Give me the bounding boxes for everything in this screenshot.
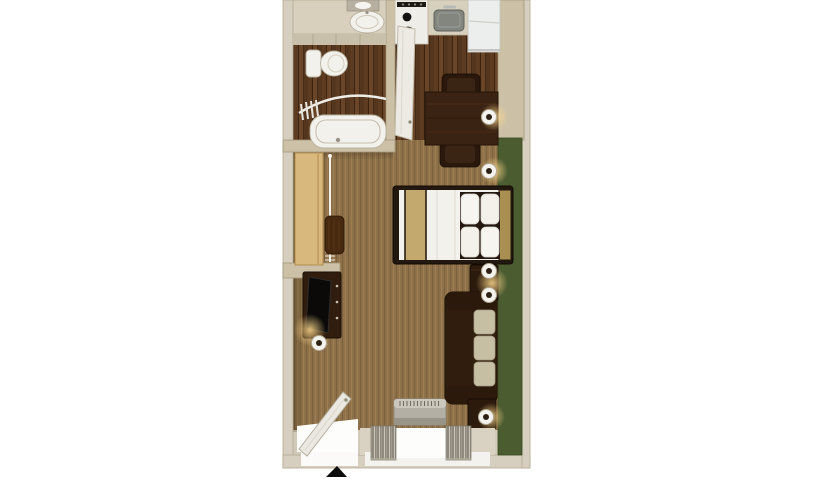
bathtub xyxy=(310,115,386,148)
drawer-knob xyxy=(336,301,339,304)
lamp-center xyxy=(316,340,322,346)
headboard xyxy=(499,190,511,260)
ac-unit xyxy=(394,399,446,425)
lamp-center xyxy=(486,168,492,174)
vanity-sink xyxy=(350,11,384,33)
lamp-center xyxy=(486,114,492,120)
sofa-cushion xyxy=(474,336,495,360)
refrigerator xyxy=(468,0,500,52)
window-light xyxy=(396,428,446,458)
closet-shelf xyxy=(295,153,323,265)
lamp-center xyxy=(483,414,489,420)
floor-plan-image xyxy=(0,0,815,480)
bed-runner xyxy=(405,190,426,260)
kitchen-sink xyxy=(428,0,470,35)
vanity-front xyxy=(293,34,386,45)
door-knob xyxy=(408,120,411,123)
sofa-cushion xyxy=(474,362,495,386)
lamp-center xyxy=(486,292,492,298)
sofa-cushion xyxy=(474,310,495,334)
bathroom-kitchen-divider-wall xyxy=(386,0,395,152)
bathroom-door xyxy=(395,26,415,140)
chair-seat xyxy=(445,145,475,163)
drawer-knob xyxy=(336,285,339,288)
drape-right xyxy=(446,426,471,460)
floor-plan-canvas xyxy=(0,0,815,480)
toilet xyxy=(306,50,348,77)
sofa-seat xyxy=(447,310,473,386)
mirror-reflection xyxy=(355,2,371,9)
tub-drain xyxy=(336,138,340,142)
sofa xyxy=(445,292,497,404)
door-knob xyxy=(344,398,348,402)
drape-left xyxy=(371,426,396,460)
bed xyxy=(393,186,513,264)
doorway-opening xyxy=(301,452,358,466)
sink-faucet xyxy=(443,6,456,9)
drawer-knob xyxy=(336,317,339,320)
lamp-center xyxy=(486,268,492,274)
left-wall xyxy=(283,0,293,468)
sink-faucet xyxy=(365,11,368,14)
